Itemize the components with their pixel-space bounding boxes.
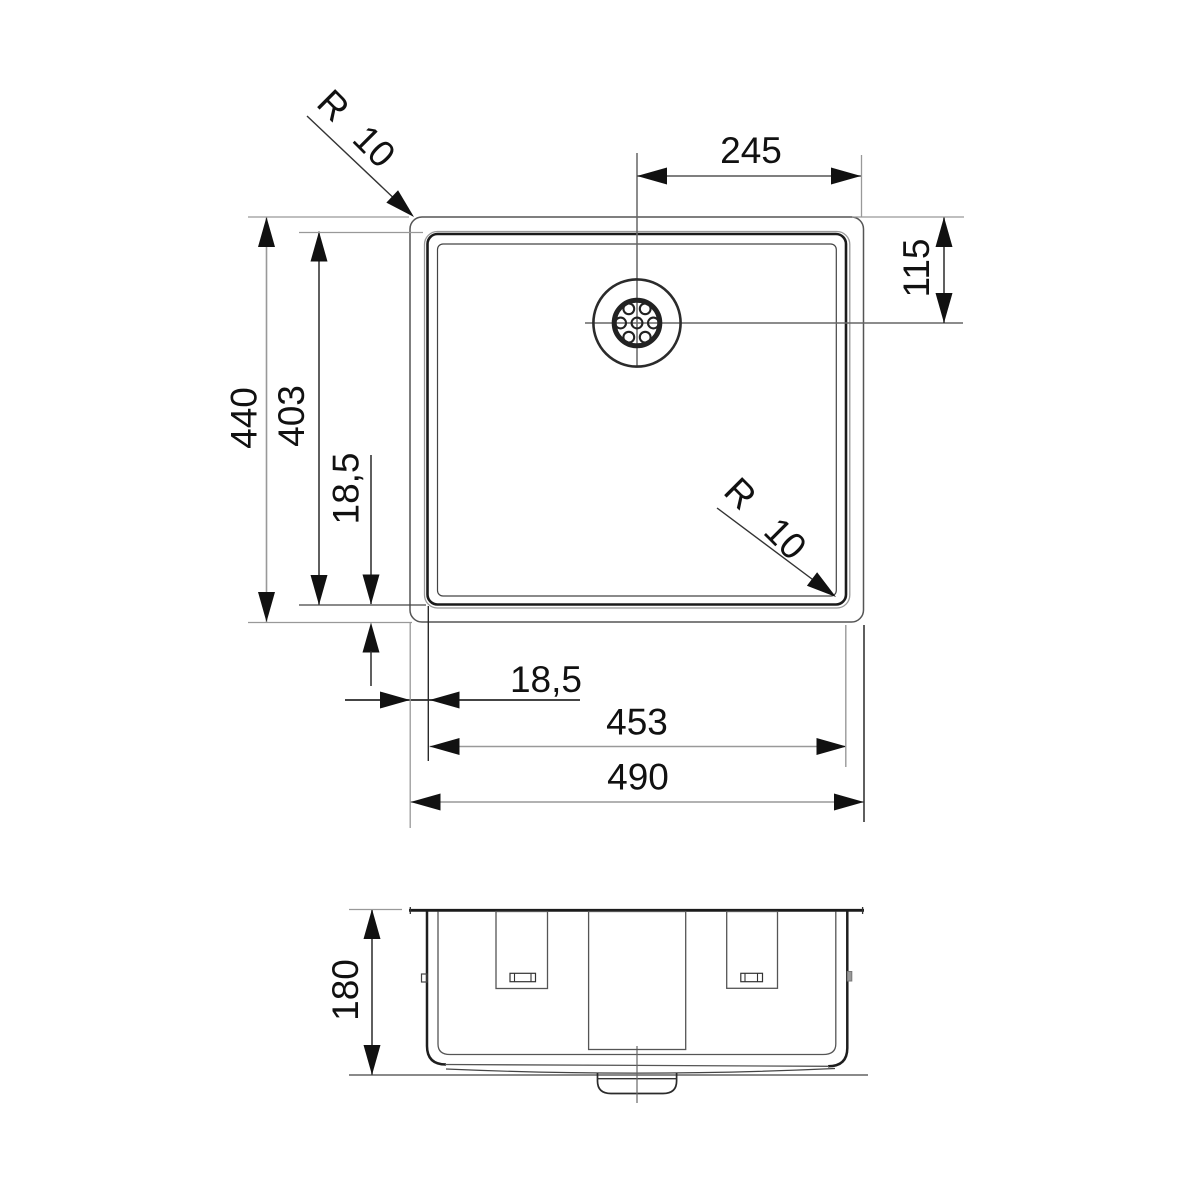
svg-text:440: 440 <box>224 387 265 449</box>
svg-text:18,5: 18,5 <box>510 659 582 700</box>
svg-text:180: 180 <box>325 959 366 1021</box>
svg-text:490: 490 <box>607 757 669 798</box>
svg-text:403: 403 <box>271 385 312 447</box>
svg-text:245: 245 <box>720 130 782 171</box>
svg-text:453: 453 <box>606 702 668 743</box>
svg-text:18,5: 18,5 <box>326 452 367 524</box>
svg-text:115: 115 <box>896 239 937 298</box>
